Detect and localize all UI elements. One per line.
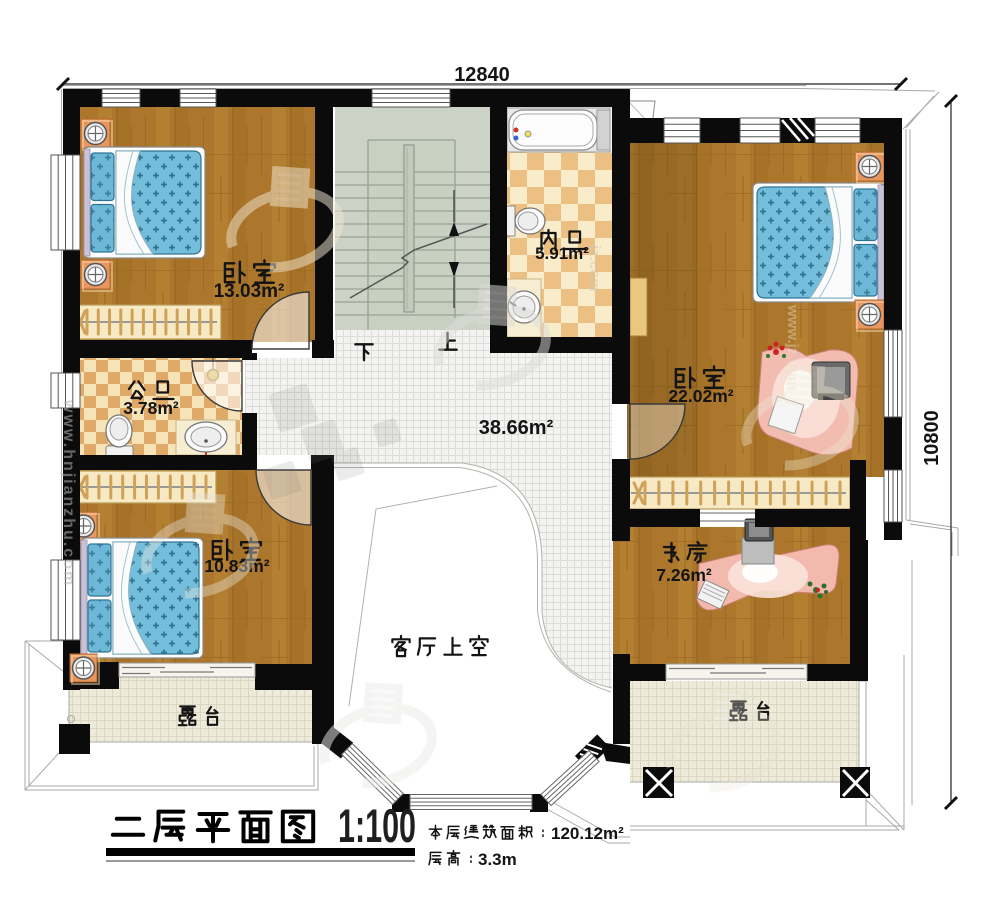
svg-text:5.91m²: 5.91m² bbox=[535, 244, 589, 263]
svg-text:1:100: 1:100 bbox=[338, 799, 416, 852]
svg-text:www.jz.com: www.jz.com bbox=[784, 304, 801, 390]
svg-text:12840: 12840 bbox=[454, 64, 510, 86]
svg-text:www.hnjianzhu.com: www.hnjianzhu.com bbox=[60, 399, 77, 587]
svg-text:7.26m²: 7.26m² bbox=[656, 565, 712, 585]
svg-text:jz.com: jz.com bbox=[586, 244, 603, 292]
svg-text:13.03m²: 13.03m² bbox=[214, 281, 285, 302]
svg-text:3.3m: 3.3m bbox=[478, 850, 517, 869]
svg-text:10800: 10800 bbox=[921, 410, 943, 466]
svg-text:38.66m²: 38.66m² bbox=[479, 417, 554, 439]
svg-text:120.12m²: 120.12m² bbox=[551, 824, 624, 843]
svg-text:3.78m²: 3.78m² bbox=[123, 398, 179, 418]
svg-text:22.02m²: 22.02m² bbox=[668, 386, 733, 406]
